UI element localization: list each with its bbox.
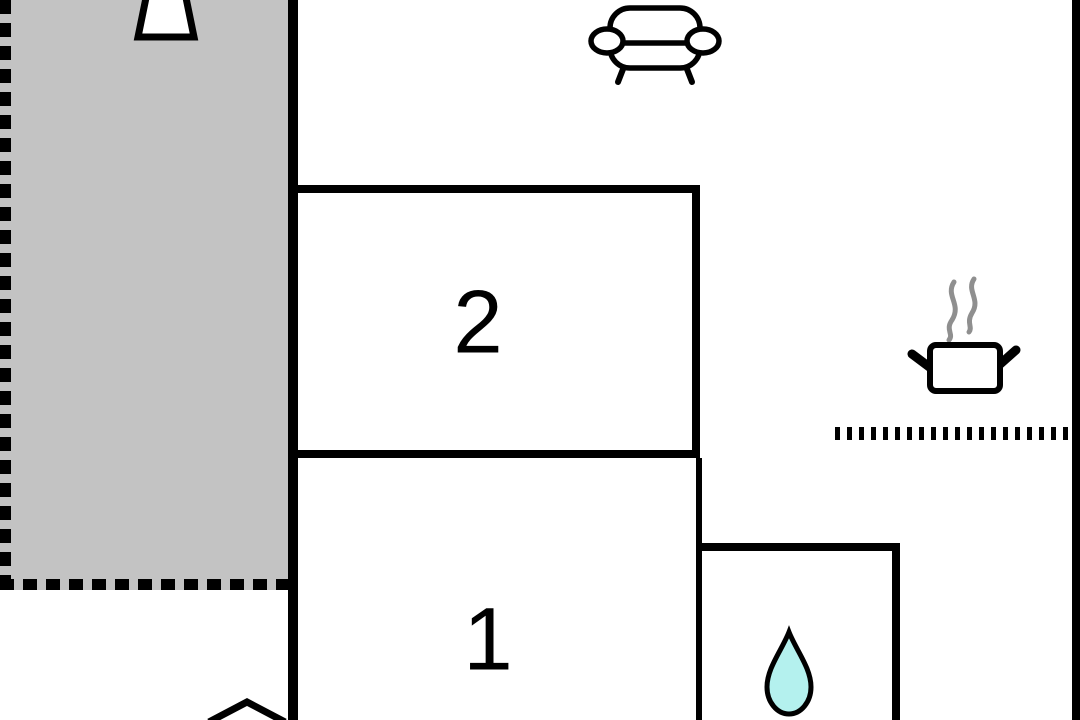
sofa-armrest-right — [687, 29, 719, 53]
wall-main-vertical — [288, 0, 298, 720]
steam-lines — [949, 279, 975, 340]
sofa-icon — [585, 2, 725, 86]
wall-outer-right — [1072, 0, 1080, 720]
room-label-2: 2 — [453, 278, 503, 367]
terrace-area — [0, 0, 293, 590]
room-2-wall-right — [692, 185, 700, 458]
water-drop-shape — [767, 632, 811, 714]
cooking-pot-icon — [903, 275, 1023, 395]
room-1-wall-right — [696, 458, 702, 720]
room-divider-wall — [288, 450, 700, 458]
entrance-arrow-icon — [203, 694, 291, 720]
bathroom-wall-top — [696, 543, 900, 551]
room-label-1: 1 — [463, 595, 513, 684]
water-drop-icon — [760, 627, 818, 719]
entrance-arrow-chevron — [209, 702, 285, 720]
parasol-icon — [128, 0, 204, 44]
terrace-dashed-border-left — [0, 0, 11, 590]
bathroom-wall-right — [892, 543, 900, 720]
pot-body — [930, 345, 1000, 391]
kitchen-counter-dotted-line — [835, 427, 1072, 440]
room-2-wall-top — [288, 185, 700, 193]
parasol-canopy — [138, 0, 194, 37]
sofa-armrest-left — [591, 29, 623, 53]
floor-plan: 2 1 — [0, 0, 1080, 720]
terrace-dashed-border-bottom — [0, 579, 293, 590]
